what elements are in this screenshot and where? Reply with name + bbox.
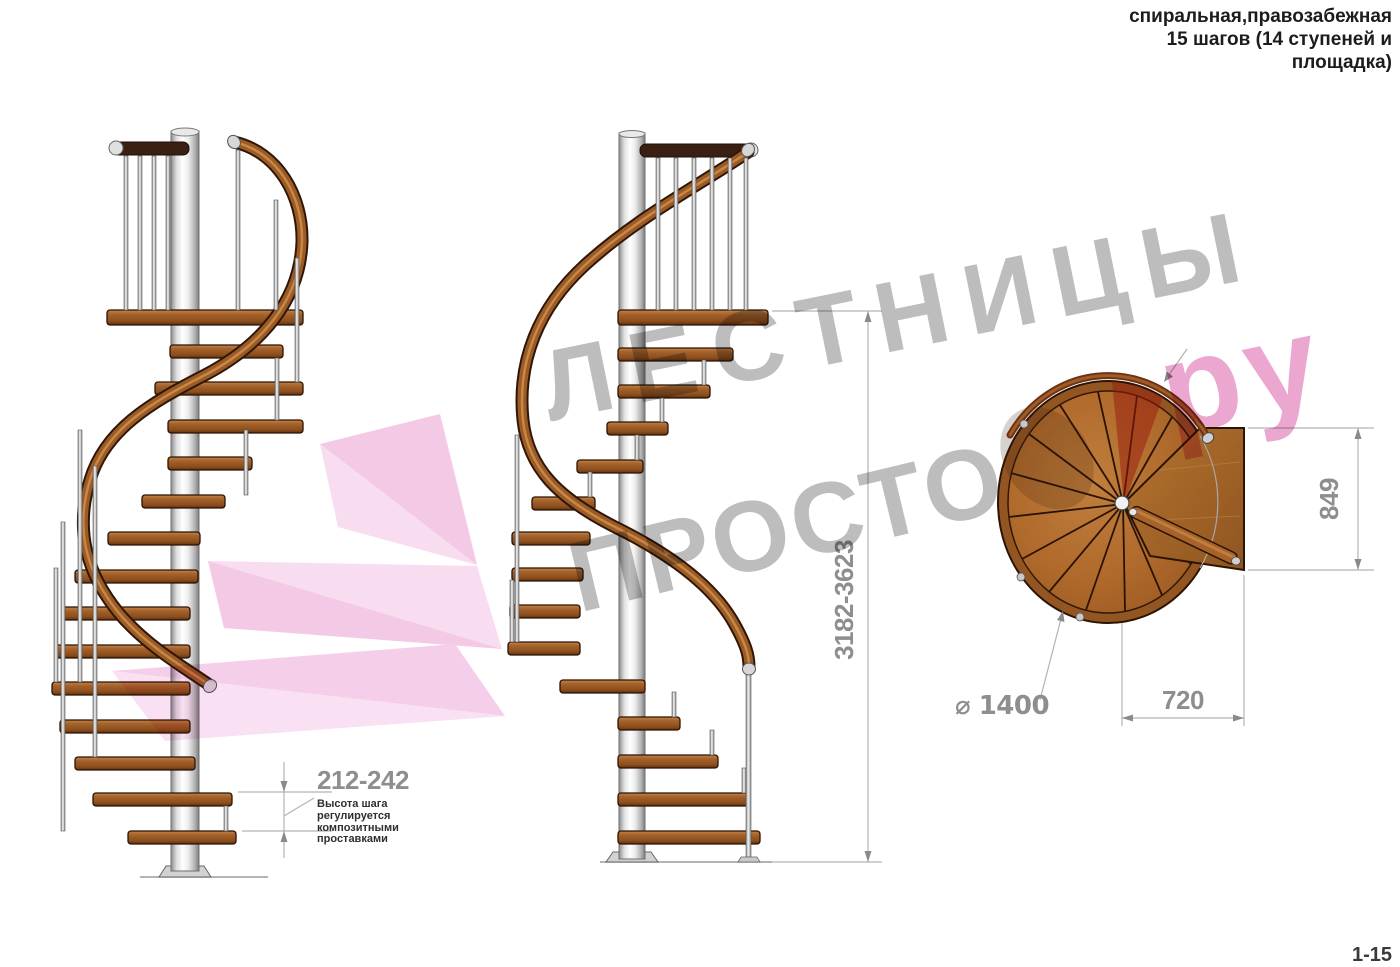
leader-line bbox=[284, 798, 314, 816]
diameter-label: ⌀ 1400 bbox=[955, 691, 1049, 721]
rim-connector-pin bbox=[1076, 613, 1084, 621]
dimension-total-height: 3182-3623 bbox=[772, 311, 882, 862]
pole-top-cap bbox=[171, 128, 199, 136]
rim-connector-pin bbox=[1017, 573, 1025, 581]
bar-start-cap bbox=[1129, 509, 1137, 516]
outer-support-post bbox=[746, 675, 751, 857]
elevation-view-1 bbox=[52, 128, 303, 877]
arrow-down-icon bbox=[1355, 559, 1362, 570]
elevation-view-2 bbox=[508, 131, 772, 863]
landing-platform bbox=[618, 310, 768, 325]
arrow-icon bbox=[1164, 372, 1173, 383]
dimension-platform-width: 720 bbox=[1122, 685, 1244, 722]
arrow-up-icon bbox=[281, 831, 288, 842]
sheet-reference: 1-15 bbox=[1352, 944, 1392, 967]
staircase-drawing: 3182-3623 212-242 bbox=[0, 0, 1400, 955]
pole-top-cap bbox=[619, 131, 645, 138]
drawing-sheet: 3182-3623 212-242 bbox=[0, 0, 1400, 955]
dimension-platform-depth: 849 bbox=[1248, 428, 1374, 570]
step-height-label: 212-242 bbox=[317, 765, 409, 795]
plan-view bbox=[981, 349, 1244, 726]
total-height-label: 3182-3623 bbox=[829, 540, 859, 660]
leader-top bbox=[1164, 349, 1187, 382]
rim-connector-pin bbox=[1020, 420, 1028, 428]
arrow-right-icon bbox=[1233, 715, 1244, 722]
pole-hub bbox=[1115, 496, 1129, 510]
dimension-diameter: ⌀ 1400 bbox=[955, 611, 1065, 721]
arrow-left-icon bbox=[1122, 715, 1133, 722]
post-foot bbox=[738, 857, 760, 862]
bar-end-cap bbox=[1232, 557, 1241, 565]
platform-rail bbox=[113, 142, 189, 155]
rail-end-cap bbox=[109, 141, 123, 155]
platform-width-label: 720 bbox=[1162, 685, 1204, 715]
step-height-annotation: Высота шага регулируется композитными пр… bbox=[317, 799, 437, 846]
arrow-down-icon bbox=[865, 851, 872, 862]
arrow-up-icon bbox=[1355, 428, 1362, 439]
arrow-up-icon bbox=[865, 311, 872, 322]
platform-depth-label: 849 bbox=[1314, 478, 1344, 520]
handrail-bottom-cap bbox=[743, 663, 756, 675]
arrow-down-icon bbox=[281, 781, 288, 792]
drawing-title: спиральная,правозабежная 15 шагов (14 ст… bbox=[1062, 5, 1392, 74]
